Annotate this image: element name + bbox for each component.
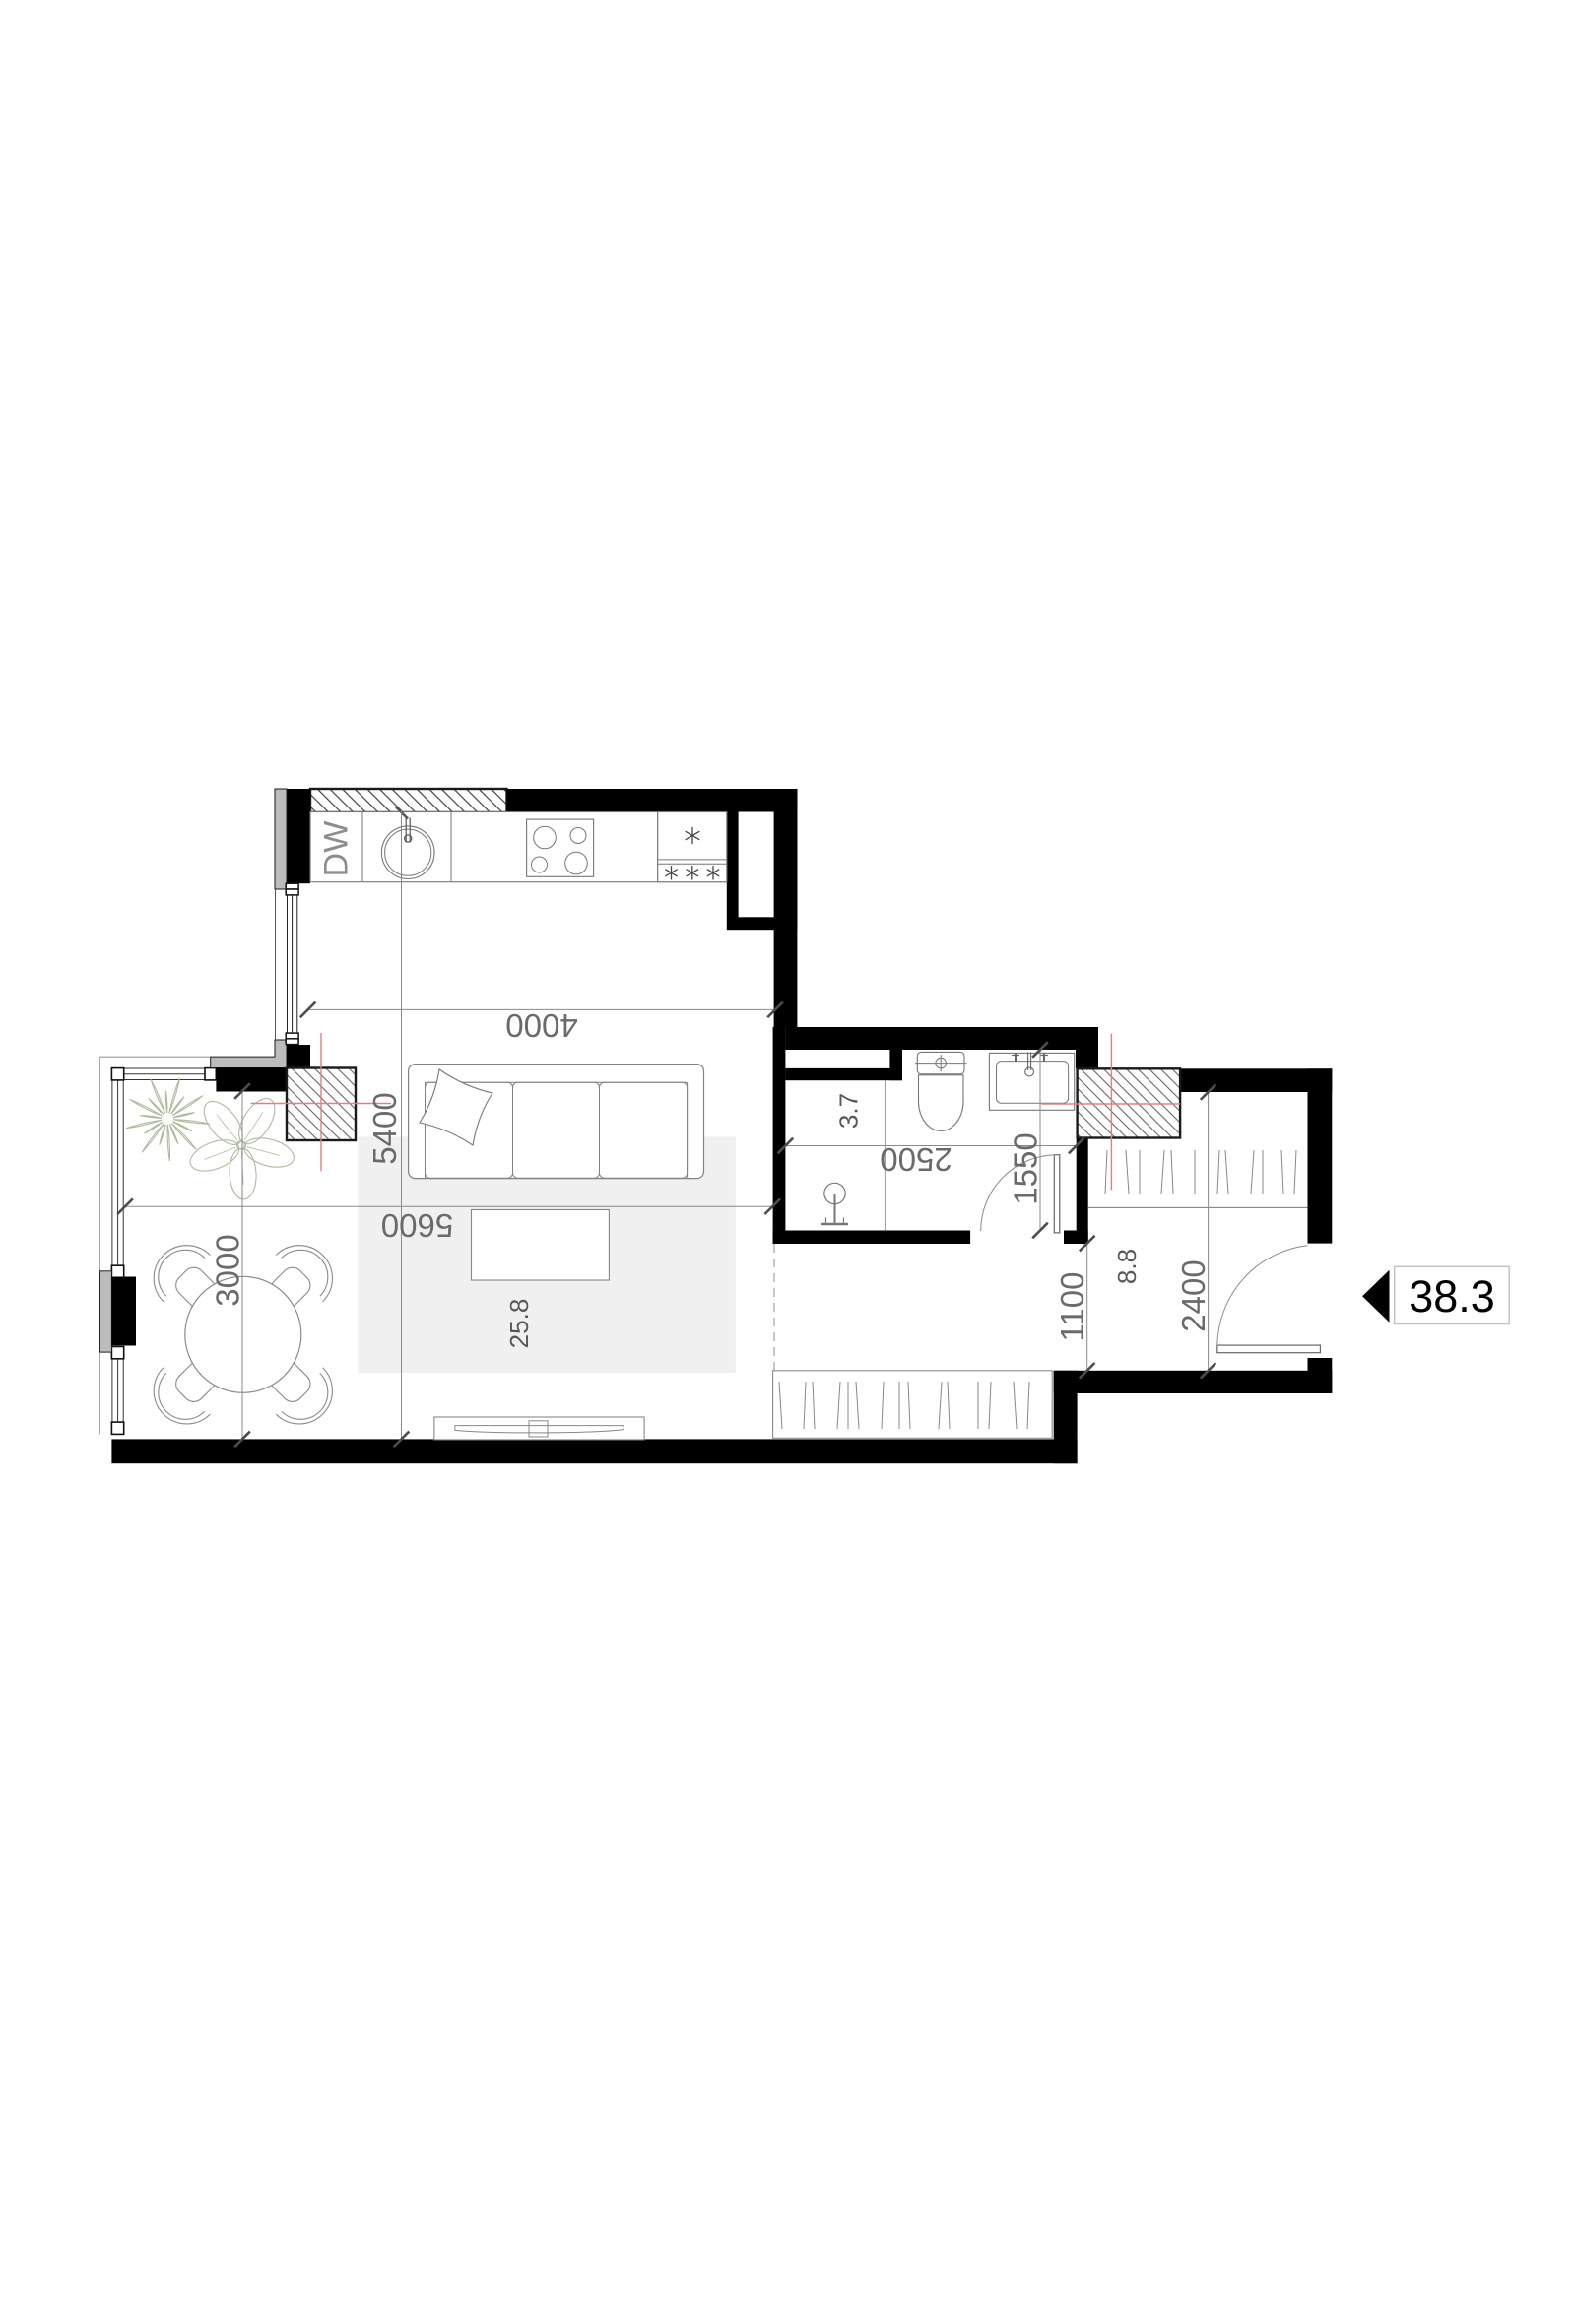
svg-text:1100: 1100 — [1054, 1272, 1090, 1342]
svg-text:8.8: 8.8 — [1112, 1249, 1142, 1284]
svg-text:2400: 2400 — [1175, 1259, 1212, 1331]
svg-text:25.8: 25.8 — [504, 1299, 534, 1349]
svg-text:38.3: 38.3 — [1409, 1271, 1495, 1322]
svg-text:3.7: 3.7 — [834, 1093, 864, 1129]
svg-text:5600: 5600 — [381, 1207, 453, 1244]
svg-text:5400: 5400 — [366, 1092, 403, 1164]
svg-text:4000: 4000 — [505, 1007, 577, 1044]
svg-text:3000: 3000 — [210, 1234, 246, 1306]
svg-text:DW: DW — [318, 821, 356, 877]
svg-text:1550: 1550 — [1008, 1132, 1044, 1204]
svg-text:2500: 2500 — [880, 1141, 952, 1178]
